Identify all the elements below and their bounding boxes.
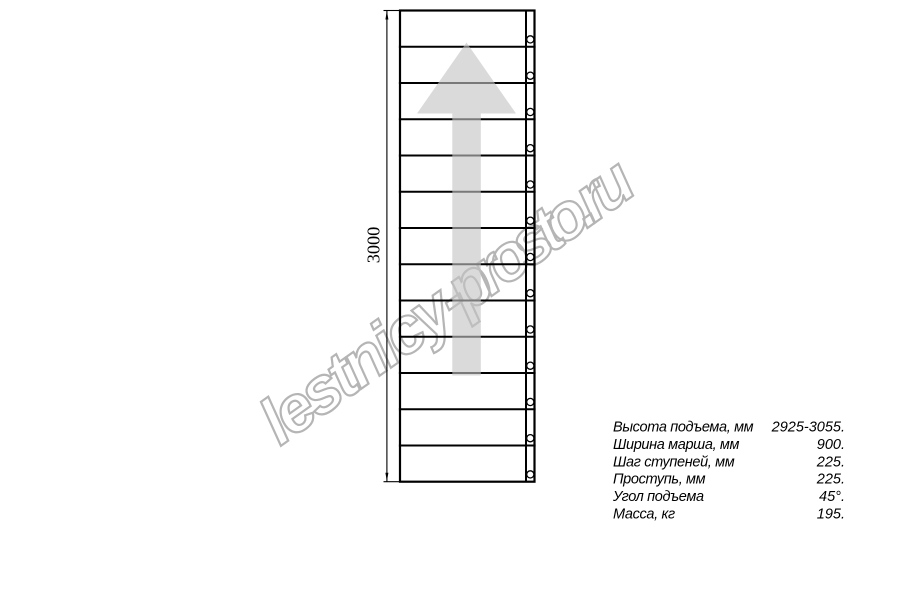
svg-text:Высота подъема, мм: Высота подъема, мм xyxy=(613,420,754,436)
svg-text:Масса, кг: Масса, кг xyxy=(613,507,675,523)
svg-text:225.: 225. xyxy=(816,472,845,488)
svg-text:Ширина марша, мм: Ширина марша, мм xyxy=(613,437,740,453)
svg-text:900.: 900. xyxy=(817,437,845,453)
svg-text:3000: 3000 xyxy=(364,227,384,264)
svg-text:Угол подъема: Угол подъема xyxy=(612,489,704,505)
svg-text:Проступь, мм: Проступь, мм xyxy=(613,472,706,488)
svg-text:2925-3055.: 2925-3055. xyxy=(771,420,845,436)
svg-text:225.: 225. xyxy=(816,454,845,470)
svg-text:195.: 195. xyxy=(817,507,845,523)
svg-text:45°.: 45°. xyxy=(819,489,845,505)
svg-text:Шаг ступеней, мм: Шаг ступеней, мм xyxy=(613,454,735,470)
